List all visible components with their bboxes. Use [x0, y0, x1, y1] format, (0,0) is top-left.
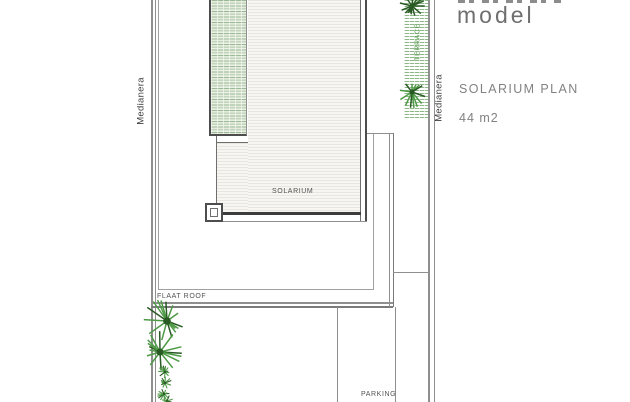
solarium-bottom-thick-edge: [223, 212, 361, 215]
parking-left-line: [337, 307, 338, 402]
solarium-right-wall-inner: [360, 0, 361, 222]
plant-icon: [161, 395, 173, 402]
floor-plan-sheet: Medianera Medianera TERRACE SOLARIUM FLA…: [0, 0, 630, 402]
block-bottom-outer-line: [206, 221, 367, 222]
right-medianera-label: Medianera: [434, 74, 444, 122]
parking-label: PARKING: [361, 391, 396, 398]
terrace-label: TERRACE: [415, 23, 422, 61]
parking-right-line: [395, 307, 396, 402]
planter-strip: [209, 0, 247, 136]
flat-roof-right-line-2: [393, 133, 394, 307]
solarium-right-wall-outer: [365, 0, 367, 222]
flat-roof-right-line-1: [389, 133, 390, 307]
plan-area-value: 44 m2: [459, 112, 499, 125]
solarium-label: SOLARIUM: [272, 188, 313, 195]
corner-column-core: [210, 208, 218, 217]
flat-roof-right-face: [373, 133, 374, 290]
flat-roof-inner-line: [158, 289, 373, 290]
right-boundary-wall-inner: [434, 0, 435, 402]
side-yard-line: [393, 272, 428, 273]
flat-roof-right-step-line: [367, 133, 393, 134]
solarium-floor: [248, 0, 360, 212]
solarium-left-wall: [216, 136, 217, 205]
flat-roof-parapet-left-face: [158, 0, 159, 289]
planter-step-line: [216, 142, 248, 143]
model-title: model: [457, 4, 535, 27]
solarium-floor-lower-left: [217, 143, 248, 212]
plant-icon: [398, 0, 426, 20]
plan-title: SOLARIUM PLAN: [459, 83, 579, 96]
plant-icon: [396, 76, 428, 108]
right-boundary-wall-outer: [428, 0, 430, 402]
left-medianera-label: Medianera: [136, 77, 146, 125]
